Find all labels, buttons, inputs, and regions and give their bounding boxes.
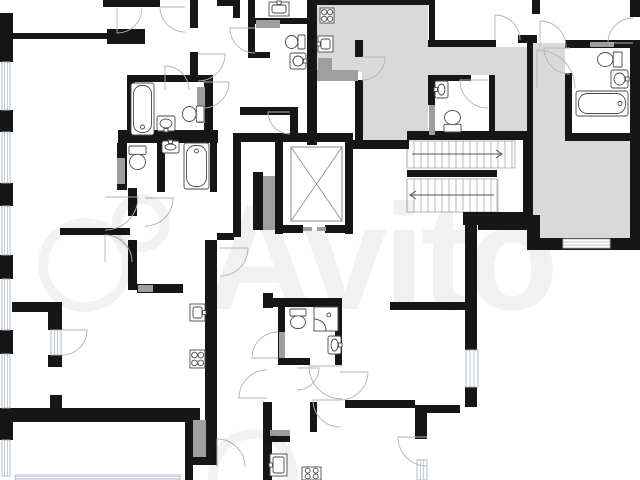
stove-icon [190,350,205,368]
sink-icon [434,81,448,98]
kitchen-sink-icon [269,1,289,16]
floor-plan-svg [0,0,640,480]
sink-icon [328,336,342,354]
kitchen-sink-icon [190,304,206,321]
bathtub-icon [131,83,154,135]
toilet-icon [182,106,204,122]
highlighted-apartment-layer [317,4,640,240]
shower-icon [314,307,338,331]
kitchen-sink-icon [317,36,333,52]
door-swing [608,18,633,43]
stove-icon [320,8,334,23]
window [2,354,10,408]
door-swing [239,370,267,398]
door-swing [340,372,368,400]
toilet-icon [598,52,623,67]
door-swing [252,332,278,358]
sink-icon [290,53,307,69]
door-swing [460,80,488,108]
staircase [407,141,515,212]
window [466,350,478,387]
door-swing [313,400,340,427]
window [2,440,10,476]
window [2,132,10,183]
sink-icon [157,116,175,132]
door-swing [62,330,87,355]
door-swing [220,248,248,276]
sink-icon [162,140,179,153]
floor-plan: Avito [0,0,640,480]
door-swing [268,112,290,134]
toilet-icon [444,110,461,132]
window [417,460,427,480]
window [15,475,180,480]
door-swing [495,15,520,40]
window [563,239,610,248]
toilet-icon [129,146,146,170]
stove-icon [302,467,321,480]
bathtub-icon [184,143,209,189]
window [2,279,10,330]
stair-landing [407,170,497,177]
window [51,330,61,355]
toilet-icon [285,35,305,49]
sink-icon [611,70,629,88]
window [2,206,10,255]
window [2,62,10,110]
bathtub-icon [576,91,628,116]
watermark-logo [43,199,293,480]
toilet-icon [290,309,306,329]
elevator [291,147,342,221]
door-swing [160,7,185,32]
